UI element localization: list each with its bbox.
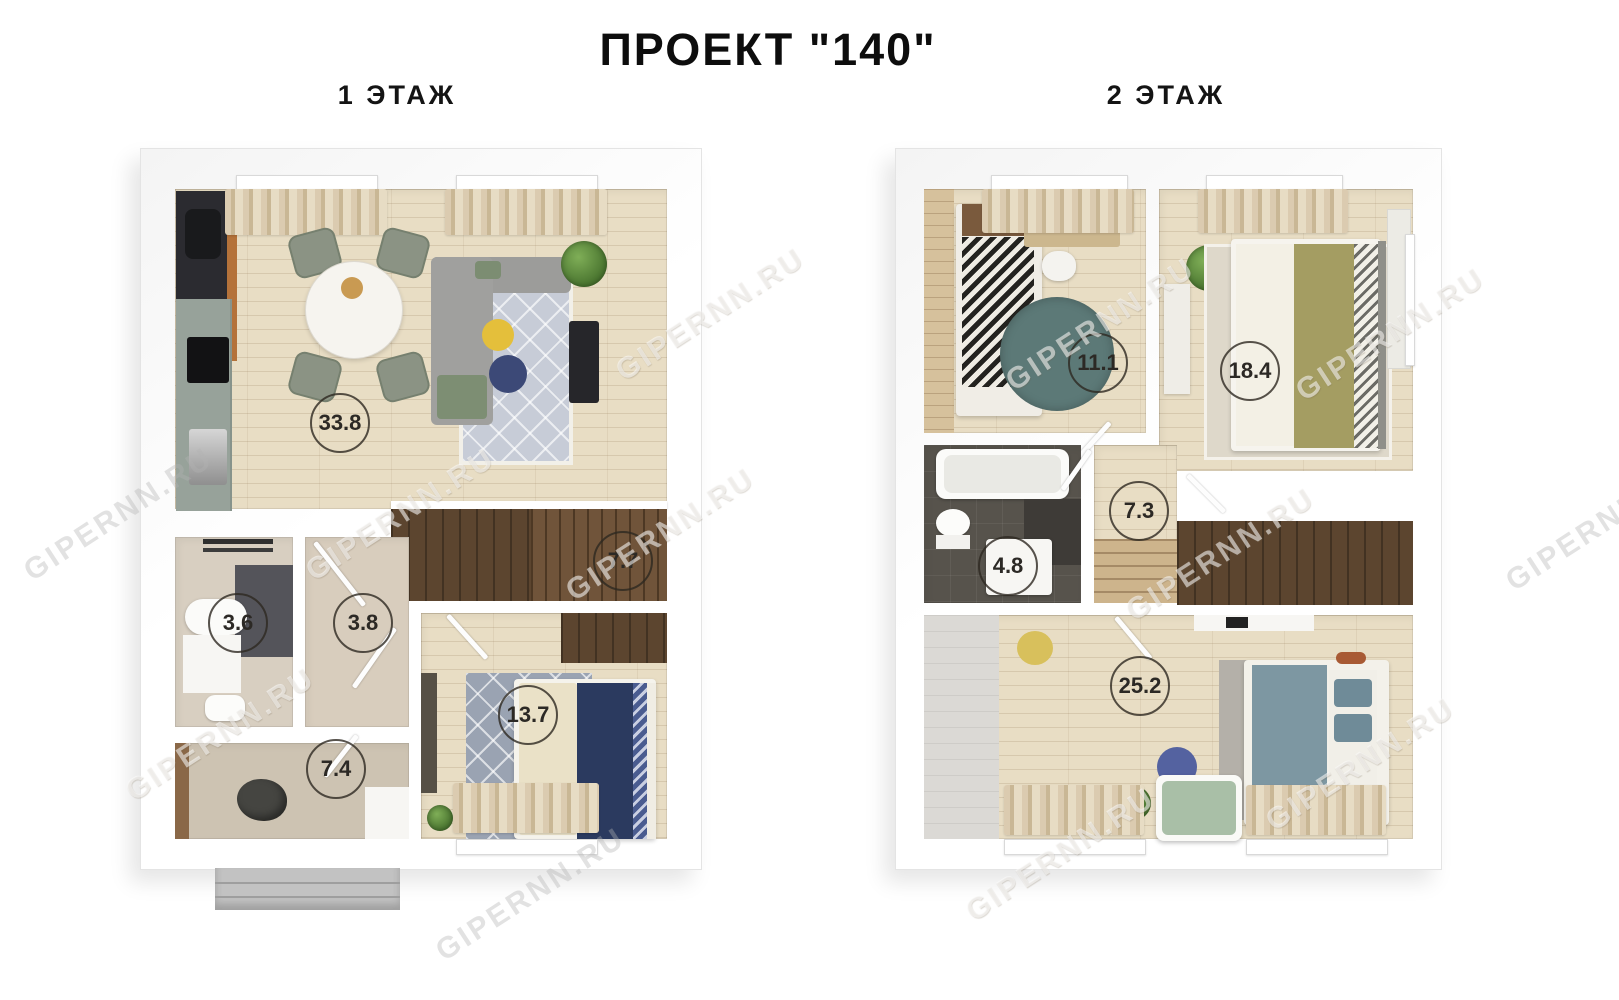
toilet-tank — [936, 535, 970, 549]
area-label-bathroom: 3.6 — [208, 593, 268, 653]
porch-step-line — [215, 896, 400, 898]
area-label-stairs: 7.7 — [593, 531, 653, 591]
towel-rail — [203, 548, 273, 552]
bed18-olive-blanket — [1294, 244, 1356, 448]
bathtub-inner — [944, 455, 1061, 493]
towel-rail — [203, 539, 273, 544]
toilet — [936, 509, 970, 537]
area-label-hall: 3.8 — [333, 593, 393, 653]
window-curtain — [453, 783, 599, 833]
bed25-pillow — [1334, 679, 1372, 707]
floor1-plan: 33.8 7.7 3.6 3.8 7.4 13.7 — [140, 148, 702, 870]
floor2-label: 2 ЭТАЖ — [1107, 80, 1225, 111]
side-window — [1405, 234, 1415, 366]
utility-wardrobe — [175, 743, 189, 839]
area-label-utility: 7.4 — [306, 739, 366, 799]
understairs-wardrobe — [391, 509, 531, 601]
window-sill — [456, 839, 598, 855]
staircase-up — [1094, 539, 1177, 603]
plant — [561, 241, 607, 287]
room11-plank-strip — [924, 189, 954, 433]
blue-pouf — [489, 355, 527, 393]
table-decor — [341, 277, 363, 299]
porch-step-line — [215, 882, 400, 884]
kitchen-appliance — [189, 429, 227, 485]
utility-box — [365, 787, 409, 839]
cooktop — [187, 337, 229, 383]
bedroom25-desk — [1194, 615, 1314, 631]
project-title: ПРОЕКТ "140" — [599, 24, 936, 76]
area-label-hall2: 7.3 — [1109, 481, 1169, 541]
bed18-headboard — [1378, 241, 1386, 449]
window-sill — [1246, 839, 1388, 855]
floor1-label: 1 ЭТАЖ — [338, 80, 456, 111]
floor2-plan: 11.1 18.4 7.3 4.8 25.2 — [895, 148, 1442, 870]
laptop — [1226, 617, 1248, 628]
window-curtain — [982, 189, 1134, 233]
floor-plan-sheet: ПРОЕКТ "140" 1 ЭТАЖ 2 ЭТАЖ — [0, 0, 1619, 1000]
sofa-pillow — [475, 261, 501, 279]
dining-table — [305, 261, 403, 359]
kitchen-sink — [185, 209, 221, 259]
boiler-stone — [237, 779, 287, 821]
area-label-room11: 11.1 — [1068, 333, 1128, 393]
tv-stand — [569, 321, 599, 403]
bedroom25-closet — [924, 615, 999, 839]
bedroom1-shelf — [421, 673, 437, 793]
bed18-pillows — [1354, 244, 1378, 448]
room11-chair — [1042, 251, 1076, 281]
hall2-wardrobe-band — [1177, 521, 1413, 605]
yellow-pouf — [482, 319, 514, 351]
yellow-pouf — [1017, 631, 1053, 665]
area-label-living-kitchen: 33.8 — [310, 393, 370, 453]
bedroom1-wardrobe — [561, 613, 667, 663]
window-curtain — [445, 189, 607, 235]
bedroom18-dresser — [1164, 284, 1190, 394]
watermark: GIPERNN.RU — [1500, 451, 1619, 598]
bed25-pillow — [1334, 714, 1372, 742]
stair-railing — [391, 501, 667, 509]
sofa25-green — [1162, 781, 1236, 835]
plant — [427, 805, 453, 831]
headboard-accent — [1336, 652, 1366, 664]
window-curtain — [1246, 785, 1386, 835]
window-curtain — [1004, 785, 1144, 835]
toilet — [205, 695, 245, 721]
area-label-bedroom1: 13.7 — [498, 685, 558, 745]
area-label-bedroom25: 25.2 — [1110, 656, 1170, 716]
area-label-bedroom18: 18.4 — [1220, 341, 1280, 401]
sofa-blanket — [437, 375, 487, 419]
window-sill — [1004, 839, 1146, 855]
porch-steps — [215, 868, 400, 910]
window-curtain — [1198, 189, 1348, 233]
bed-pillows — [647, 683, 656, 839]
door-swing — [1186, 473, 1226, 513]
area-label-bathroom2: 4.8 — [978, 536, 1038, 596]
window-curtain — [225, 189, 387, 235]
bed-pattern — [633, 683, 647, 839]
